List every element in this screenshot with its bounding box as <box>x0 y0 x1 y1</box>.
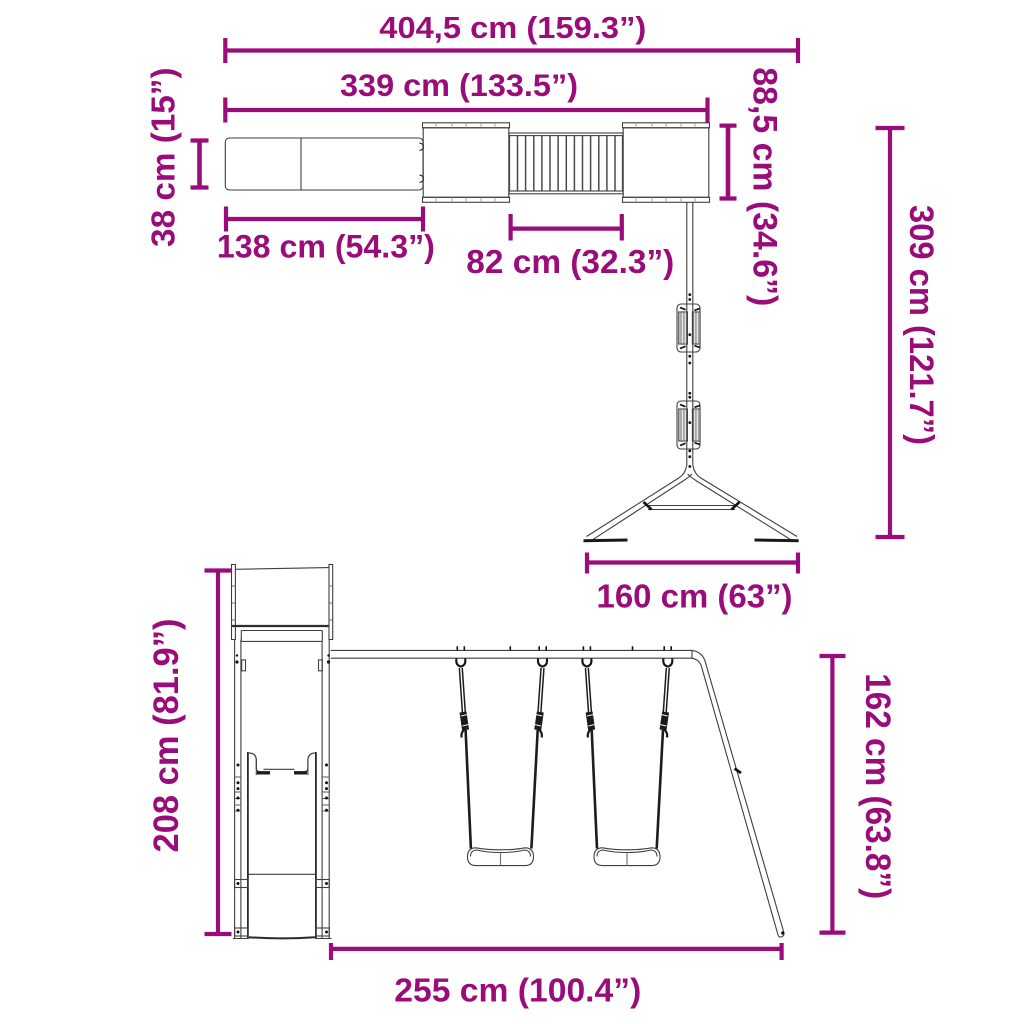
svg-text:339 cm (133.5”): 339 cm (133.5”) <box>340 67 578 103</box>
svg-text:160 cm (63”): 160 cm (63”) <box>597 578 793 615</box>
svg-text:38 cm (15”): 38 cm (15”) <box>145 67 182 247</box>
svg-text:309 cm (121.7”): 309 cm (121.7”) <box>902 205 940 445</box>
svg-text:404,5 cm (159.3”): 404,5 cm (159.3”) <box>379 11 646 45</box>
svg-text:82 cm (32.3”): 82 cm (32.3”) <box>466 244 674 281</box>
svg-text:88,5 cm (34.6”): 88,5 cm (34.6”) <box>746 67 784 306</box>
svg-text:162 cm (63.8”): 162 cm (63.8”) <box>858 673 897 899</box>
svg-text:138 cm (54.3”): 138 cm (54.3”) <box>217 228 435 264</box>
svg-text:208 cm (81.9”): 208 cm (81.9”) <box>147 619 186 853</box>
svg-text:255 cm (100.4”): 255 cm (100.4”) <box>394 972 641 1009</box>
